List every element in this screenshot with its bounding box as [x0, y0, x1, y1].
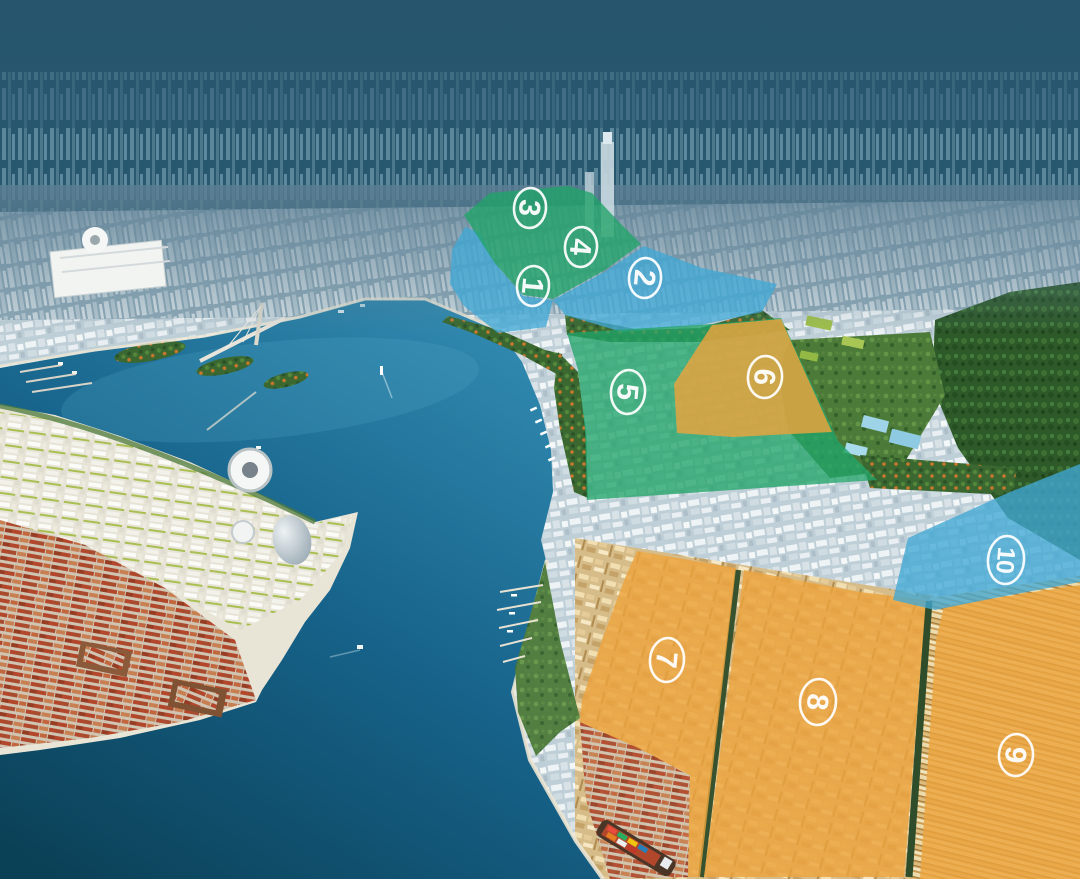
- svg-text:9: 9: [998, 745, 1032, 765]
- svg-text:10: 10: [990, 546, 1020, 574]
- svg-text:4: 4: [563, 237, 597, 257]
- svg-text:8: 8: [800, 692, 834, 712]
- svg-text:7: 7: [649, 650, 683, 670]
- zone-9-region: [920, 585, 1080, 879]
- white-dome: [232, 521, 254, 543]
- svg-text:6: 6: [747, 367, 781, 387]
- masterplan-aerial-map: 1 2 3 4 5 6 7 8 9 10: [0, 0, 1080, 879]
- map-scene: 1 2 3 4 5 6 7 8 9 10: [0, 0, 1080, 879]
- svg-text:1: 1: [515, 276, 549, 296]
- svg-text:2: 2: [627, 268, 661, 288]
- stadium-core: [242, 462, 258, 478]
- svg-text:5: 5: [610, 382, 644, 402]
- svg-text:3: 3: [512, 198, 546, 218]
